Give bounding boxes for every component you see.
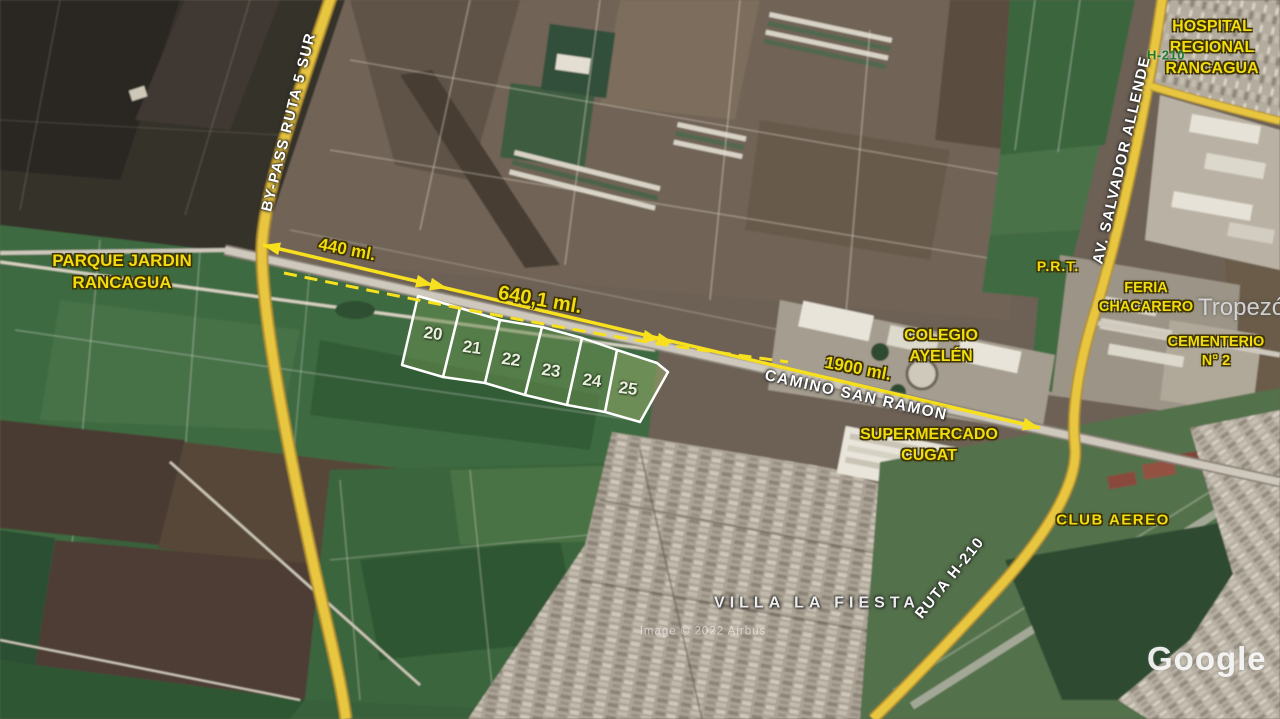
feria-line2: CHACARERO: [1099, 298, 1193, 317]
place-label-villa-la-fiesta: VILLA LA FIESTA: [714, 594, 920, 615]
lot-25-number: 25: [617, 377, 639, 402]
place-label-club-aereo: CLUB AEREO: [1056, 510, 1170, 530]
place-label-feria-chacarero: FERIA CHACARERO: [1099, 279, 1193, 317]
place-label-prt: P.R.T.: [1037, 257, 1079, 275]
place-label-colegio-ayelen: COLEGIO AYELÉN: [904, 326, 978, 368]
parque-jardin-line2: RANCAGUA: [52, 272, 191, 294]
hospital-line1: HOSPITAL: [1165, 17, 1258, 38]
google-logo: Google: [1147, 638, 1267, 681]
lot-22-number: 22: [500, 348, 522, 373]
place-label-parque-jardin: PARQUE JARDIN RANCAGUA: [52, 250, 191, 294]
imagery-credit: Image © 2022 Airbus: [640, 625, 767, 640]
lot-23-number: 23: [540, 359, 562, 384]
map-canvas[interactable]: BY-PASS RUTA 5 SUR PARQUE JARDIN RANCAGU…: [0, 0, 1280, 719]
colegio-line2: AYELÉN: [904, 347, 978, 368]
place-label-supermercado-cugat: SUPERMERCADO CUGAT: [860, 425, 998, 467]
lot-24-number: 24: [581, 369, 603, 394]
lot-20-number: 20: [422, 322, 444, 347]
place-label-tropezon: Tropezón: [1198, 292, 1280, 323]
place-label-cementerio: CEMENTERIO N° 2: [1168, 333, 1265, 371]
cementerio-line2: N° 2: [1168, 352, 1265, 371]
cementerio-line1: CEMENTERIO: [1168, 333, 1265, 352]
feria-line1: FERIA: [1099, 279, 1193, 298]
satellite-basemap: [0, 0, 1280, 719]
lot-21-number: 21: [461, 336, 483, 361]
supermercado-line2: CUGAT: [860, 446, 998, 467]
supermercado-line1: SUPERMERCADO: [860, 425, 998, 446]
parque-jardin-line1: PARQUE JARDIN: [52, 250, 191, 272]
colegio-line1: COLEGIO: [904, 326, 978, 347]
